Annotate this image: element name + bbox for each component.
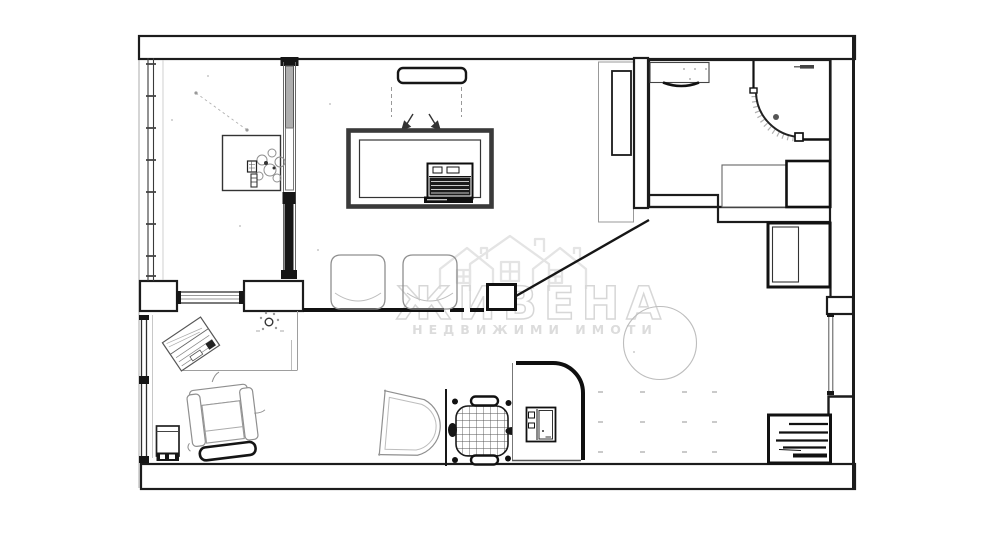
sink-counter-icon <box>650 63 709 87</box>
office-chair-icon <box>448 397 519 465</box>
hall-closet-door <box>612 71 631 155</box>
top-wall <box>139 36 855 59</box>
entry-post-icon <box>488 285 516 310</box>
office-chair-mesh-seat <box>456 406 508 456</box>
watermark-tagline-text: НЕДВИЖИМИ ИМОТИ <box>412 322 658 337</box>
bathroom-bottom-wall-a <box>649 195 718 207</box>
monitor-icon <box>527 408 556 442</box>
washing-machine-icon <box>787 161 831 207</box>
dining-chair-icon <box>331 255 385 309</box>
lower-left-room <box>157 311 298 462</box>
pass-through-window-icon <box>176 291 244 304</box>
ottoman-bar <box>199 441 256 461</box>
bottom-wall <box>141 464 855 489</box>
angled-laptop-icon <box>162 317 219 371</box>
sliding-door-icon <box>281 62 297 279</box>
entry-hall <box>598 223 831 463</box>
tv-icon <box>398 68 466 83</box>
faucet-icon <box>794 65 814 69</box>
corner-shower-icon <box>750 61 830 141</box>
floor-plan-canvas: ЖИВЕНА НЕДВИЖИМИ ИМОТИ <box>0 0 1000 533</box>
left-room-wall-right-block <box>244 281 303 311</box>
office-chair-back-bar <box>471 397 498 406</box>
radiator-icon <box>769 415 831 463</box>
bathroom-bottom-wall-b <box>718 207 830 222</box>
floor-plan-image: ЖИВЕНА НЕДВИЖИМИ ИМОТИ <box>0 0 1000 533</box>
potted-plant-icon <box>256 312 284 331</box>
floor-dots-icon <box>598 391 717 453</box>
closet-inner-panel <box>773 227 799 282</box>
sliding-door-white-panel <box>286 128 294 190</box>
living-area <box>331 68 492 309</box>
floor-cabinet-icon <box>157 426 180 461</box>
sliding-door-dark-panel <box>285 204 294 270</box>
left-window-lower-icon <box>139 315 153 463</box>
right-wall-bottom-corner <box>829 397 854 465</box>
bathroom <box>649 60 830 207</box>
office-chair-front-bar <box>471 456 498 465</box>
pendant-cord-icon <box>196 93 247 130</box>
sliding-door-glass-panel <box>286 66 294 128</box>
guest-chair-icon <box>376 389 444 462</box>
left-room-wall-left-block <box>140 281 177 311</box>
desk-icon <box>512 363 583 461</box>
left-window-upper-icon <box>146 58 163 281</box>
bath-counter-icon <box>722 165 786 207</box>
right-wall-step <box>827 297 853 314</box>
right-window-icon <box>827 313 834 395</box>
armchair-icon <box>179 367 270 462</box>
shower-drain-icon <box>773 114 779 120</box>
bathroom-left-wall <box>634 58 648 208</box>
laptop-icon <box>424 164 473 204</box>
swing-arrow-icon <box>402 114 440 130</box>
left-room-furniture <box>171 75 331 251</box>
desk-zone <box>376 363 583 466</box>
